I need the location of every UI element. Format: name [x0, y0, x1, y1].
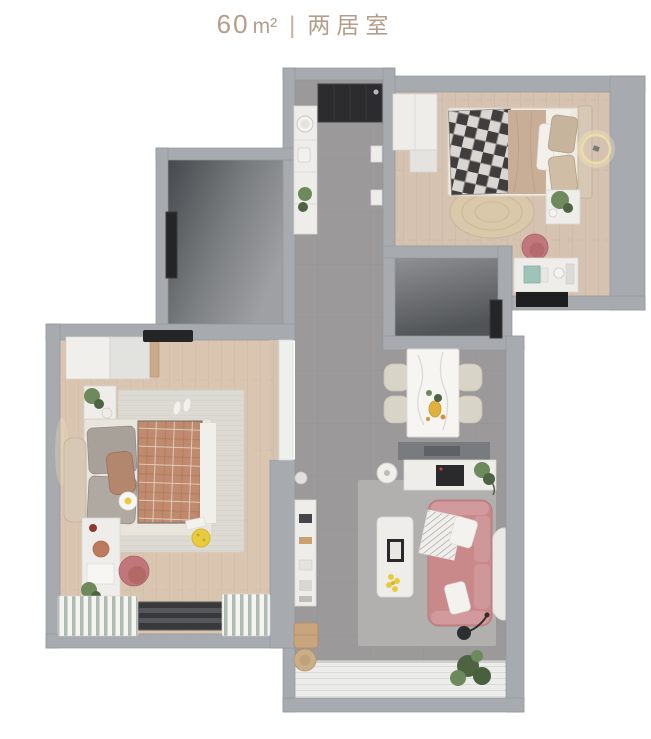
wall-living-right: [506, 336, 524, 712]
master-window: [134, 602, 228, 630]
table-lamp: [102, 408, 112, 418]
wall-bedroom2-right: [610, 76, 645, 310]
bedroom2-desk: [514, 258, 578, 292]
floorplan-svg: [0, 0, 651, 739]
headboard: [64, 438, 86, 522]
accent-pillow: [106, 451, 137, 496]
bedroom2-dark-ledge: [516, 292, 568, 307]
teal-books: [524, 266, 540, 283]
wall-living-bottom: [283, 698, 524, 712]
sliding-door-leaf: [279, 340, 293, 460]
wood-stool-round: [294, 649, 316, 671]
wall-bedroom2-top: [383, 76, 645, 92]
wall-master-right-lower: [270, 460, 295, 648]
tv-console: [295, 500, 316, 606]
master-door-opening: [270, 340, 293, 460]
master-desk: [81, 518, 120, 601]
pillow: [548, 155, 578, 194]
master-wardrobe: [66, 337, 159, 379]
daisy-cushion: [119, 492, 137, 510]
kitchen-counter: [294, 106, 317, 234]
wall-shelf-2: [371, 190, 382, 205]
floor-bathroom: [395, 258, 498, 336]
wall-bathroom-bottom: [383, 336, 524, 350]
coffee-table: [377, 517, 413, 597]
wood-stool-square: [294, 623, 318, 648]
curtain-left: [58, 596, 138, 636]
white-duvet: [200, 423, 216, 523]
counter-plant: [298, 187, 312, 201]
back-cushion: [474, 564, 490, 609]
dining-chair: [456, 364, 482, 391]
plaid-blanket: [449, 109, 514, 195]
dining-chair: [384, 364, 410, 391]
dining-chair: [384, 396, 410, 423]
floor-storage-room: [168, 160, 283, 324]
curtain-right: [222, 594, 270, 636]
master-nightstand: [84, 386, 116, 422]
yellow-bag: [192, 529, 210, 547]
cup: [554, 268, 564, 278]
bedroom2-nightstand: [546, 190, 580, 224]
sideboard: [398, 442, 496, 495]
cooktop: [318, 84, 382, 122]
wall-shelf-1: [371, 146, 382, 162]
bathroom-door: [490, 300, 502, 338]
pillow: [548, 114, 579, 153]
vase: [295, 472, 307, 484]
wall-storage-top: [156, 148, 295, 160]
dining-table: [407, 349, 459, 437]
wall-kitchen-top: [283, 68, 395, 80]
sofa: [419, 500, 492, 626]
terracotta-plaid-blanket: [138, 421, 202, 523]
storage-wall-mirror: [166, 212, 177, 278]
wall-corridor-left-upper: [283, 68, 295, 340]
wall-bathroom-top: [383, 246, 512, 258]
dining-chair: [456, 396, 482, 423]
robot-vacuum: [377, 463, 397, 483]
ac-vent: [143, 330, 193, 342]
kettle: [298, 148, 310, 162]
floorplan-page: 60 m² | 两居室: [0, 0, 651, 739]
bedroom2-bed: [448, 106, 592, 198]
